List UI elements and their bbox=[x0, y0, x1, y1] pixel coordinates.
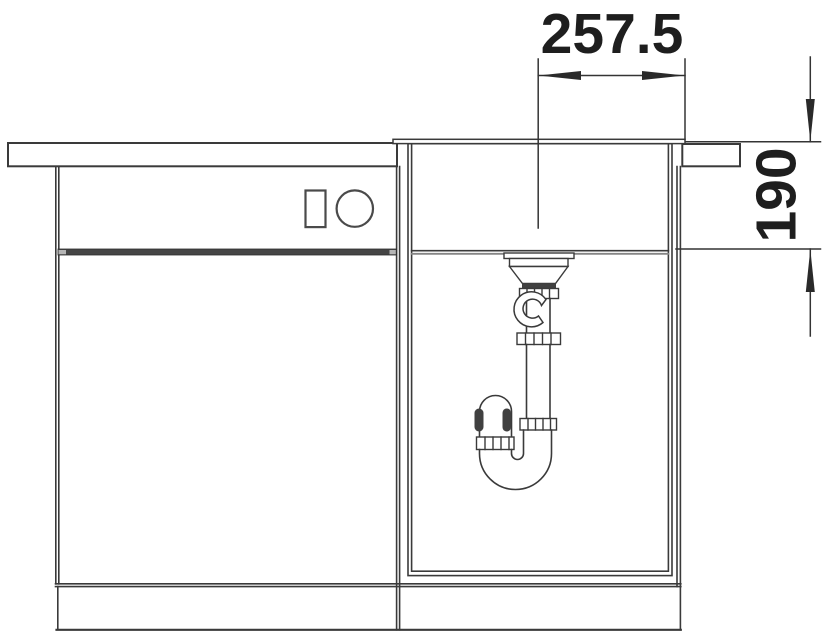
dimension-width-label: 257.5 bbox=[541, 2, 684, 66]
dimension-depth-label: 190 bbox=[745, 147, 809, 242]
arrowhead-right bbox=[642, 71, 685, 80]
dimension-bowl-depth: 190 bbox=[676, 57, 821, 336]
sink-cabinet-interior bbox=[408, 144, 672, 576]
coupling-nut-4 bbox=[477, 437, 515, 450]
countertop-left-section bbox=[8, 143, 397, 166]
drawer-gap-bar bbox=[58, 249, 397, 255]
sink-rim bbox=[393, 139, 685, 143]
arrowhead-up bbox=[806, 249, 815, 292]
arrowhead-left bbox=[539, 71, 582, 80]
rectangle-symbol bbox=[306, 191, 326, 228]
coupling-nut-2 bbox=[517, 333, 561, 345]
sink-installation-diagram: 257.5 190 bbox=[0, 0, 832, 638]
cabinet-front-details bbox=[58, 190, 397, 255]
circle-symbol bbox=[337, 190, 373, 226]
technical-drawing-canvas: 257.5 190 bbox=[0, 0, 832, 638]
coupling-nut-3 bbox=[520, 419, 557, 431]
countertop-right-section bbox=[682, 144, 740, 166]
plinth-panel bbox=[57, 587, 681, 630]
arrowhead-down bbox=[806, 99, 815, 142]
